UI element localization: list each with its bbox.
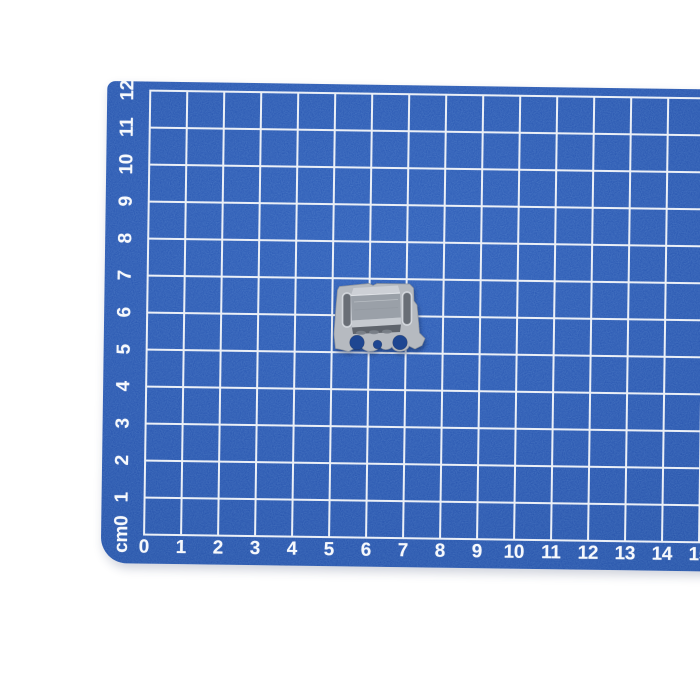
left-axis-label: 6 bbox=[115, 307, 135, 318]
left-axis-label: 3 bbox=[114, 418, 134, 429]
clip-bridge-foot bbox=[369, 330, 379, 334]
clip-hole-right bbox=[393, 335, 408, 350]
bottom-axis-label: 2 bbox=[213, 539, 224, 559]
clip-hole-center-small bbox=[373, 340, 382, 349]
bottom-axis-label: 12 bbox=[577, 544, 598, 564]
bottom-axis-label: 14 bbox=[651, 545, 672, 565]
bottom-axis-label: 5 bbox=[324, 540, 335, 560]
bottom-axis-label: 11 bbox=[541, 543, 561, 563]
left-axis-label: 5 bbox=[115, 344, 135, 355]
left-axis-label: 2 bbox=[113, 455, 133, 466]
left-axis: cm0123456789101112 bbox=[101, 89, 149, 536]
left-axis-label: 4 bbox=[114, 381, 134, 392]
bottom-axis-label: 15 bbox=[688, 545, 700, 565]
clip-bridge-front-face bbox=[351, 293, 401, 321]
left-axis-label: 8 bbox=[116, 233, 136, 244]
clip-hole-left bbox=[350, 335, 365, 350]
bottom-axis-label: 10 bbox=[503, 543, 524, 563]
bottom-axis-label: 13 bbox=[614, 544, 635, 564]
left-axis-label: 7 bbox=[116, 270, 136, 281]
product-photo: 0123456789101112131415 cm012345678910111… bbox=[0, 0, 700, 700]
bottom-axis-label: 0 bbox=[139, 537, 150, 557]
bottom-axis-label: 4 bbox=[287, 540, 298, 560]
bottom-axis-label: 7 bbox=[398, 541, 409, 561]
bottom-axis-label: 6 bbox=[361, 541, 372, 561]
metal-clip bbox=[330, 280, 428, 358]
bottom-axis-label: 1 bbox=[176, 538, 187, 558]
left-axis-label: cm0 bbox=[112, 516, 133, 553]
clip-slot-left bbox=[344, 294, 351, 326]
bottom-axis-label: 9 bbox=[472, 542, 483, 562]
bottom-axis-label: 8 bbox=[435, 542, 446, 562]
left-axis-label: 9 bbox=[117, 196, 137, 207]
clip-bridge-foot bbox=[356, 331, 366, 335]
left-axis-label: 11 bbox=[118, 117, 138, 137]
left-axis-label: 12 bbox=[118, 80, 138, 101]
left-axis-label: 1 bbox=[113, 492, 133, 503]
bottom-axis-label: 3 bbox=[250, 539, 261, 559]
clip-bridge-foot bbox=[382, 330, 392, 334]
clip-slot-right bbox=[404, 293, 411, 324]
left-axis-label: 10 bbox=[117, 154, 137, 175]
